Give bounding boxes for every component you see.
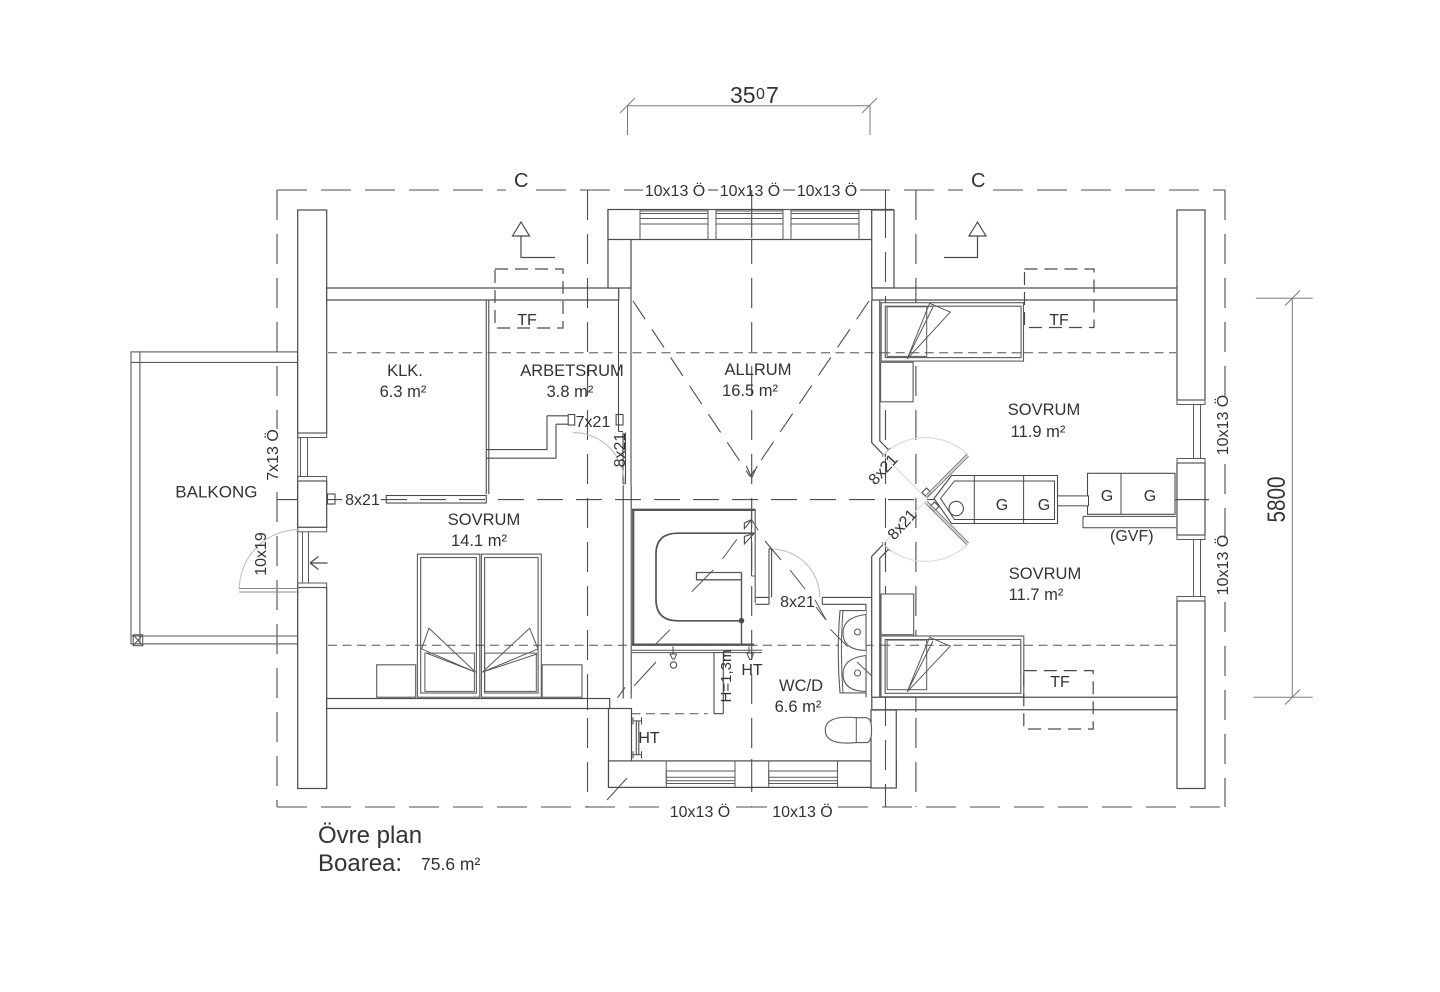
svg-text:6.6 m²: 6.6 m² [775, 698, 822, 716]
svg-text:35: 35 [730, 82, 756, 108]
svg-text:10x13 Ö: 10x13 Ö [645, 182, 705, 200]
svg-text:TF: TF [517, 312, 537, 329]
svg-text:WC/D: WC/D [779, 677, 823, 695]
svg-text:C: C [514, 170, 528, 192]
svg-text:11.7 m²: 11.7 m² [1009, 586, 1064, 604]
svg-text:SOVRUM: SOVRUM [1008, 401, 1080, 419]
svg-text:HT: HT [741, 662, 763, 679]
svg-text:7x21: 7x21 [576, 414, 611, 431]
svg-text:14.1 m²: 14.1 m² [451, 532, 507, 550]
svg-text:Boarea:: Boarea: [318, 850, 402, 877]
svg-text:G: G [1144, 488, 1156, 505]
svg-text:7: 7 [766, 82, 779, 108]
svg-text:11.9 m²: 11.9 m² [1011, 423, 1066, 441]
svg-text:KLK.: KLK. [387, 362, 423, 380]
svg-text:BALKONG: BALKONG [175, 483, 257, 502]
svg-text:ARBETSRUM: ARBETSRUM [520, 362, 624, 380]
svg-text:SOVRUM: SOVRUM [1009, 565, 1081, 583]
svg-text:16.5 m²: 16.5 m² [722, 382, 778, 400]
svg-text:5800: 5800 [1263, 477, 1291, 523]
svg-text:10x19: 10x19 [253, 532, 270, 576]
svg-text:C: C [971, 170, 985, 192]
svg-text:8x21: 8x21 [780, 594, 815, 611]
svg-text:H=1,3m: H=1,3m [718, 650, 735, 703]
svg-text:10x13 Ö: 10x13 Ö [670, 803, 730, 821]
svg-text:G: G [996, 497, 1008, 514]
svg-text:10x13 Ö: 10x13 Ö [772, 803, 832, 821]
svg-text:TF: TF [1050, 674, 1070, 691]
svg-text:G: G [1101, 488, 1113, 505]
svg-text:HT: HT [638, 730, 660, 747]
svg-text:SOVRUM: SOVRUM [448, 511, 520, 529]
svg-text:8x21: 8x21 [612, 433, 629, 468]
svg-text:G: G [1038, 497, 1050, 514]
svg-text:3.8 m²: 3.8 m² [547, 383, 594, 401]
svg-text:10x13 Ö: 10x13 Ö [1214, 395, 1232, 455]
svg-text:TF: TF [1049, 312, 1069, 329]
svg-text:8x21: 8x21 [345, 492, 380, 509]
svg-text:ALLRUM: ALLRUM [725, 361, 792, 379]
svg-text:(GVF): (GVF) [1110, 528, 1154, 545]
svg-text:7x13 Ö: 7x13 Ö [264, 429, 282, 481]
svg-text:10x13 Ö: 10x13 Ö [1214, 535, 1232, 595]
svg-text:Övre plan: Övre plan [318, 822, 422, 849]
svg-text:10x13 Ö: 10x13 Ö [797, 182, 857, 200]
svg-text:75.6 m²: 75.6 m² [421, 854, 480, 874]
svg-text:0: 0 [756, 86, 765, 103]
svg-text:10x13 Ö: 10x13 Ö [720, 182, 780, 200]
svg-text:6.3 m²: 6.3 m² [380, 383, 427, 401]
